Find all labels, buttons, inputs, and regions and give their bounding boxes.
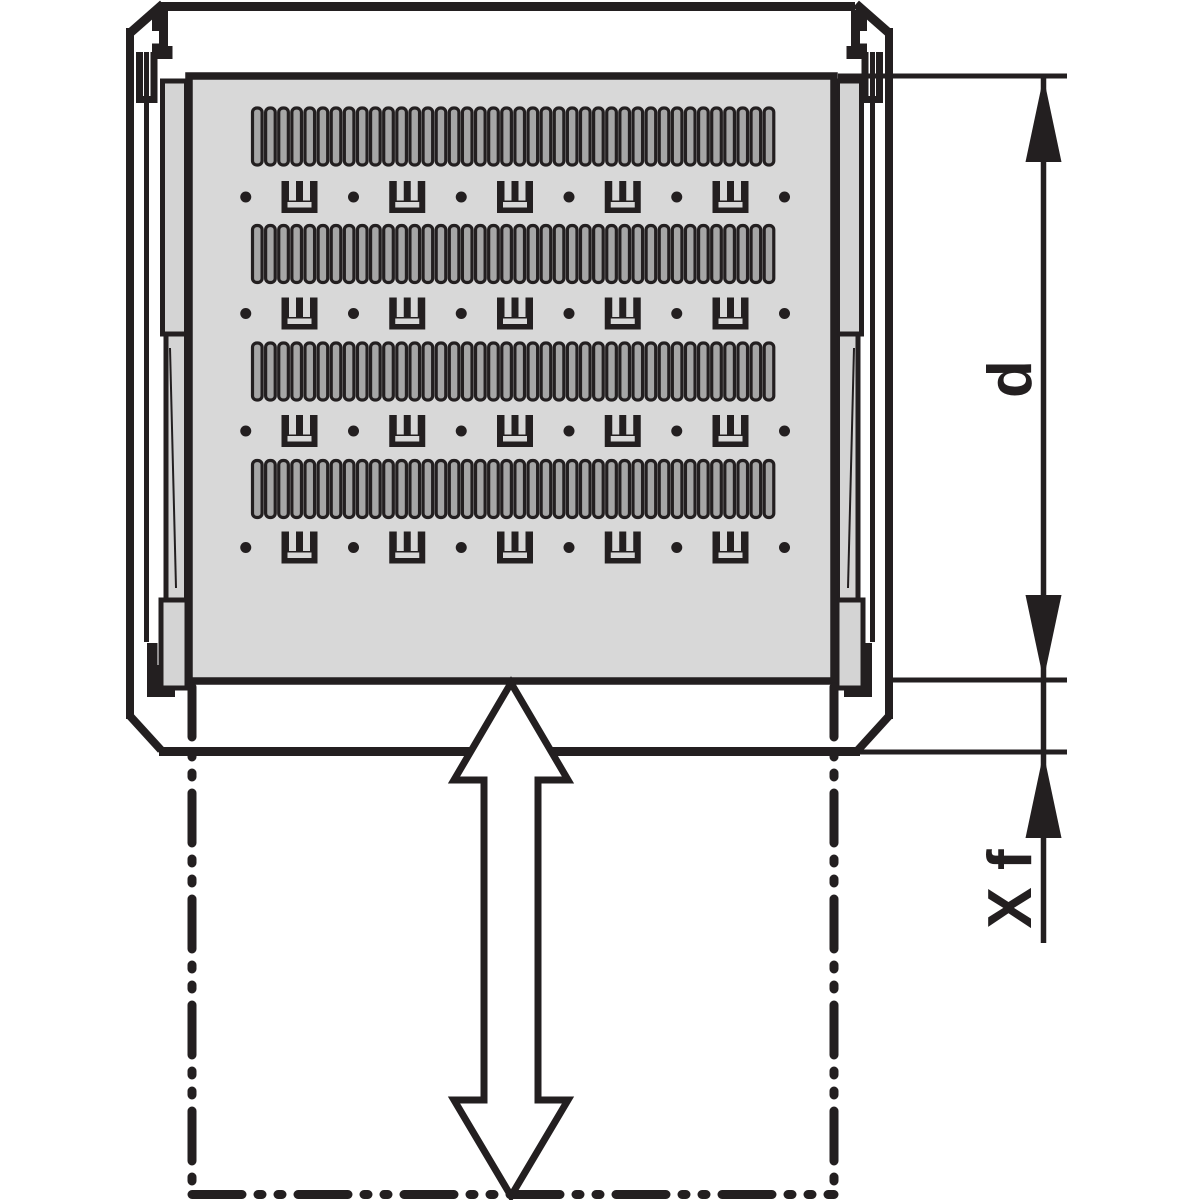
vent-slot [725, 461, 735, 518]
vent-slot [646, 461, 656, 518]
vent-slot [449, 108, 459, 165]
cable-tie-bracket [497, 181, 533, 213]
extension-label: X f [976, 849, 1045, 929]
cable-tie-bracket [389, 415, 425, 447]
vent-slot [344, 461, 354, 518]
vent-slot [607, 461, 617, 518]
vent-slot [764, 343, 774, 400]
vent-slot [712, 108, 722, 165]
vent-slot [528, 343, 538, 400]
cable-tie-bracket [605, 181, 641, 213]
vent-slot [384, 343, 394, 400]
cable-tie-bracket [605, 415, 641, 447]
vent-slot [712, 343, 722, 400]
rail-end-cap [161, 600, 187, 688]
slide-direction-arrow [454, 683, 568, 1196]
vent-slot [318, 108, 328, 165]
vent-slot [646, 108, 656, 165]
vent-slot [541, 343, 551, 400]
vent-slot [685, 343, 695, 400]
vent-slot [489, 108, 499, 165]
top-corner-bracket [152, 10, 173, 59]
vent-slot [279, 461, 289, 518]
vent-slot [751, 108, 761, 165]
vent-slot [476, 108, 486, 165]
vent-slot [581, 108, 591, 165]
vent-slot [410, 461, 420, 518]
vent-slot [528, 461, 538, 518]
vent-slot [685, 461, 695, 518]
vent-slot [423, 226, 433, 283]
vent-slot [253, 226, 263, 283]
vent-slot [397, 226, 407, 283]
mounting-hole [564, 542, 575, 553]
vent-slot [410, 108, 420, 165]
mounting-hole [456, 542, 467, 553]
mounting-hole [456, 308, 467, 319]
vent-slot [528, 108, 538, 165]
cable-tie-bracket [605, 298, 641, 330]
vent-slot [436, 108, 446, 165]
vent-slot [253, 108, 263, 165]
vent-slot [607, 108, 617, 165]
vent-slot [659, 461, 669, 518]
vent-slot [567, 226, 577, 283]
vent-slot [725, 226, 735, 283]
vent-slot [502, 226, 512, 283]
vent-slot [738, 461, 748, 518]
vent-slot [292, 226, 302, 283]
cable-tie-bracket [713, 532, 749, 564]
mounting-hole [456, 426, 467, 437]
vent-slot [502, 461, 512, 518]
vent-slot [567, 461, 577, 518]
vent-slot [541, 108, 551, 165]
mounting-hole [456, 192, 467, 203]
mounting-hole [348, 308, 359, 319]
cable-tie-bracket [282, 415, 318, 447]
mounting-hole [779, 542, 790, 553]
vent-slot [751, 226, 761, 283]
vent-slot [318, 226, 328, 283]
vent-slot [672, 461, 682, 518]
vent-slot [620, 343, 630, 400]
mounting-hole [671, 426, 682, 437]
vent-slot [581, 343, 591, 400]
vent-slot [331, 226, 341, 283]
cable-tie-bracket [497, 532, 533, 564]
cable-tie-bracket [282, 298, 318, 330]
vent-slot [371, 461, 381, 518]
slide-rail-right [837, 81, 863, 688]
vent-slot [266, 343, 276, 400]
vent-slot [672, 226, 682, 283]
vent-slot [436, 461, 446, 518]
vent-slot [751, 343, 761, 400]
vent-slot [515, 461, 525, 518]
vent-slot [685, 108, 695, 165]
mounting-hole [564, 308, 575, 319]
vent-slot [449, 343, 459, 400]
mounting-hole [240, 542, 251, 553]
vent-slot [489, 461, 499, 518]
vent-slot [699, 108, 709, 165]
vent-slot [266, 108, 276, 165]
mounting-hole [348, 192, 359, 203]
vent-slot [371, 108, 381, 165]
vent-slot [659, 108, 669, 165]
mounting-hole [240, 308, 251, 319]
dimension-xf: X f [976, 753, 1062, 929]
vent-slot [384, 108, 394, 165]
vent-slot [462, 226, 472, 283]
vent-slot [344, 108, 354, 165]
vent-slot [515, 108, 525, 165]
vent-slot [554, 461, 564, 518]
vent-slot [423, 461, 433, 518]
vent-slot [384, 226, 394, 283]
vent-slot [410, 343, 420, 400]
vent-slot [620, 108, 630, 165]
vent-slot [633, 343, 643, 400]
vent-slot [567, 343, 577, 400]
vent-slot [685, 226, 695, 283]
mounting-hole [671, 308, 682, 319]
cable-tie-bracket [389, 181, 425, 213]
vent-slot [594, 461, 604, 518]
mounting-hole [564, 426, 575, 437]
vent-slot [476, 226, 486, 283]
vent-slot [371, 226, 381, 283]
vent-slot [344, 343, 354, 400]
mounting-hole [240, 192, 251, 203]
rack-shelf-diagram: d X f [0, 0, 1200, 1200]
vent-slot [528, 226, 538, 283]
dim-arrow-down-shelf-bottom [1026, 595, 1062, 680]
vent-slot [594, 108, 604, 165]
vent-slot [344, 226, 354, 283]
vent-slot [594, 226, 604, 283]
vent-slot [751, 461, 761, 518]
vent-slot [462, 461, 472, 518]
vent-slot [541, 461, 551, 518]
vent-slot [646, 226, 656, 283]
vent-slot [712, 226, 722, 283]
vent-slot [331, 343, 341, 400]
vent-slot [646, 343, 656, 400]
slide-rail-left [161, 81, 187, 688]
vent-slot [738, 226, 748, 283]
mounting-hole [779, 308, 790, 319]
mounting-hole [671, 192, 682, 203]
vent-slot [541, 226, 551, 283]
vent-slot [279, 343, 289, 400]
vent-slot [266, 226, 276, 283]
vent-slot [371, 343, 381, 400]
mounting-hole [348, 542, 359, 553]
vent-slot [423, 343, 433, 400]
vent-slot [581, 226, 591, 283]
vent-slot [476, 343, 486, 400]
vent-slot [292, 461, 302, 518]
vent-slot [764, 461, 774, 518]
mounting-hole [671, 542, 682, 553]
vent-slot [502, 108, 512, 165]
shelf-panel [189, 76, 834, 681]
vent-slot [567, 108, 577, 165]
vent-slot [357, 108, 367, 165]
cable-tie-bracket [713, 298, 749, 330]
vent-slot [397, 108, 407, 165]
mounting-hole [240, 426, 251, 437]
vent-slot [712, 461, 722, 518]
cable-tie-bracket [389, 298, 425, 330]
vent-slot [279, 108, 289, 165]
vent-slot [699, 461, 709, 518]
vent-slot [633, 226, 643, 283]
vent-slot [489, 226, 499, 283]
vent-slot [620, 226, 630, 283]
vent-slot [607, 226, 617, 283]
vent-slot [397, 461, 407, 518]
vent-slot [318, 461, 328, 518]
vent-slot [318, 343, 328, 400]
vent-slot [436, 343, 446, 400]
vent-slot [725, 108, 735, 165]
depth-label: d [976, 360, 1045, 398]
vent-slot [357, 226, 367, 283]
vent-slot [672, 343, 682, 400]
vent-slot [305, 461, 315, 518]
mounting-hole [779, 192, 790, 203]
cable-tie-bracket [713, 181, 749, 213]
cable-tie-bracket [497, 298, 533, 330]
vent-slot [305, 226, 315, 283]
vent-slot [659, 343, 669, 400]
vent-slot [357, 461, 367, 518]
vent-slot [305, 108, 315, 165]
cable-tie-bracket [389, 532, 425, 564]
vent-slot [699, 343, 709, 400]
vent-slot [633, 108, 643, 165]
cable-tie-bracket [497, 415, 533, 447]
vent-slot [554, 226, 564, 283]
vent-slot [554, 108, 564, 165]
diagram-canvas: d X f [0, 0, 1200, 1200]
vent-slot [659, 226, 669, 283]
vent-slot [738, 343, 748, 400]
vent-slot [515, 226, 525, 283]
vent-slot [331, 108, 341, 165]
vent-slot [672, 108, 682, 165]
vent-slot [594, 343, 604, 400]
vent-slot [515, 343, 525, 400]
vent-slot [292, 108, 302, 165]
vent-slot [462, 343, 472, 400]
vent-slot [764, 108, 774, 165]
vent-slot [253, 343, 263, 400]
vent-slot [738, 108, 748, 165]
cable-tie-bracket [713, 415, 749, 447]
dim-arrow-up-top [1026, 77, 1062, 162]
vent-slot [397, 343, 407, 400]
vent-slot [581, 461, 591, 518]
cable-tie-bracket [605, 532, 641, 564]
dim-arrow-up-cabinet-bottom [1026, 753, 1062, 838]
cable-tie-bracket [282, 181, 318, 213]
rail-outer-member [163, 81, 187, 334]
vent-slot [331, 461, 341, 518]
vent-slot [462, 108, 472, 165]
vent-slot [292, 343, 302, 400]
vent-slot [725, 343, 735, 400]
vent-slot [699, 226, 709, 283]
vent-slot [620, 461, 630, 518]
vent-slot [607, 343, 617, 400]
vent-slot [279, 226, 289, 283]
vent-slot [633, 461, 643, 518]
cable-tie-bracket [282, 532, 318, 564]
vent-slot [305, 343, 315, 400]
mounting-hole [564, 192, 575, 203]
vent-slot [253, 461, 263, 518]
vent-slot [489, 343, 499, 400]
vent-slot [384, 461, 394, 518]
bottom-corner-diagonal [130, 716, 161, 750]
vent-slot [423, 108, 433, 165]
mounting-hole [348, 426, 359, 437]
vent-slot [266, 461, 276, 518]
vent-slot [436, 226, 446, 283]
vent-slot [449, 226, 459, 283]
vent-slot [554, 343, 564, 400]
vent-slot [764, 226, 774, 283]
vent-slot [410, 226, 420, 283]
mounting-hole [779, 426, 790, 437]
vent-slot [357, 343, 367, 400]
vent-slot [502, 343, 512, 400]
vent-slot [476, 461, 486, 518]
vent-slot [449, 461, 459, 518]
